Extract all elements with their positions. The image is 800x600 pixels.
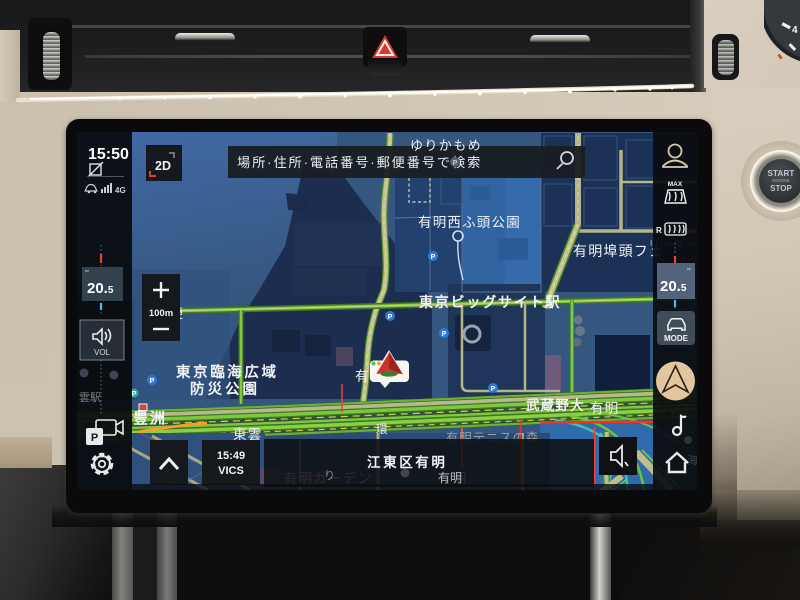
svg-text:P: P [132, 391, 137, 398]
svg-text:有明西ふ頭公園: 有明西ふ頭公園 [418, 215, 521, 230]
svg-text:MODE: MODE [664, 334, 689, 343]
svg-text:ゆりかもめ: ゆりかもめ [410, 138, 482, 153]
svg-text:東京ビッグサイト駅: 東京ビッグサイト駅 [419, 294, 561, 310]
svg-text:MAX: MAX [668, 181, 683, 188]
svg-text:4G: 4G [115, 186, 126, 195]
svg-text:有: 有 [355, 369, 370, 384]
svg-text:武蔵野大: 武蔵野大 [526, 397, 585, 413]
svg-text:**: ** [85, 270, 89, 276]
svg-text:海: 海 [687, 453, 697, 467]
svg-text:豊洲: 豊洲 [133, 409, 167, 427]
svg-text:江東区有明: 江東区有明 [367, 454, 448, 470]
svg-text:15:50: 15:50 [88, 146, 129, 163]
svg-text:東雲: 東雲 [233, 427, 262, 442]
svg-text:P: P [491, 386, 496, 393]
svg-text:2D: 2D [155, 159, 171, 173]
svg-text:有明: 有明 [590, 401, 619, 416]
svg-text:環: 環 [376, 423, 389, 436]
svg-text:P: P [150, 378, 155, 385]
svg-text:P: P [453, 160, 458, 167]
svg-text:100m: 100m [149, 308, 173, 319]
svg-text:り: り [324, 469, 335, 482]
svg-text:4: 4 [792, 25, 798, 36]
svg-text:東京臨海広域: 東京臨海広域 [176, 363, 279, 381]
svg-text:P: P [91, 432, 98, 444]
svg-text:VOL: VOL [94, 348, 111, 357]
svg-text:有明: 有明 [438, 471, 462, 485]
svg-text:VICS: VICS [218, 465, 244, 477]
svg-text:**: ** [687, 268, 691, 274]
svg-text:P: P [431, 254, 436, 261]
svg-text:場所·住所·電話番号·郵便番号で検索: 場所·住所·電話番号·郵便番号で検索 [237, 154, 482, 170]
svg-text:P: P [442, 331, 447, 338]
svg-text:雲駅: 雲駅 [79, 391, 101, 404]
svg-text:15:49: 15:49 [217, 450, 245, 462]
svg-text:R: R [656, 226, 662, 235]
svg-text:P: P [388, 314, 393, 321]
svg-text:防災公園: 防災公園 [190, 380, 260, 398]
